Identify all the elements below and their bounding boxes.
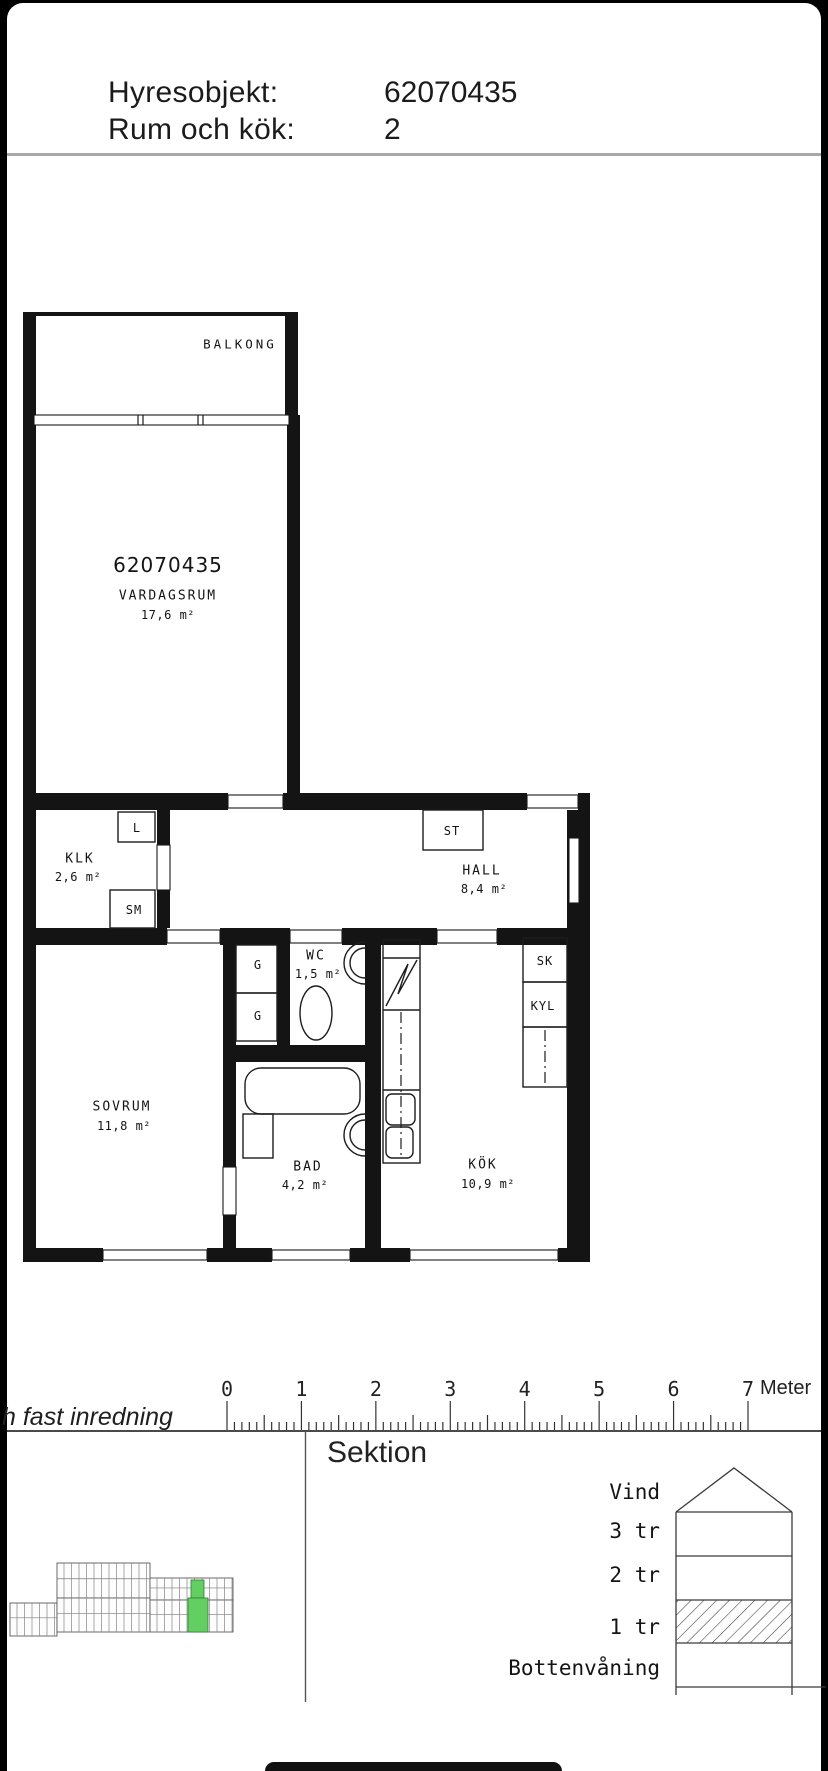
room-area-klk: 2,6 m² (55, 870, 101, 884)
home-indicator[interactable] (265, 1762, 562, 1771)
section-floor-bottenvaning: Bottenvåning (508, 1656, 660, 1680)
room-label-hall: HALL (462, 864, 501, 879)
section-title: Sektion (327, 1436, 427, 1470)
room-label-bad: BAD (293, 1160, 322, 1175)
closet-label-st: ST (444, 824, 460, 838)
caption-fragment: h fast inredning (2, 1403, 173, 1432)
ruler-tick-label: 3 (444, 1377, 456, 1401)
room-label-klk: KLK (65, 852, 94, 867)
bad-washbasin-icon (344, 1114, 365, 1156)
ruler-tick-label: 5 (593, 1377, 605, 1401)
balcony-label: BALKONG (203, 337, 277, 352)
closet-label-g1: G (254, 958, 262, 972)
highlighted-unit-upper (191, 1580, 204, 1598)
scale-bar-ticks (227, 1401, 748, 1431)
stove-icon (386, 960, 417, 1006)
room-label-kok: KÖK (468, 1158, 497, 1173)
closet-label-kyl: KYL (531, 999, 556, 1013)
ruler-tick-label: 0 (221, 1377, 233, 1401)
kitchen-counter (383, 940, 420, 1163)
highlighted-unit (188, 1598, 208, 1632)
room-area-bad: 4,2 m² (282, 1178, 328, 1192)
section-floor-3tr: 3 tr (609, 1519, 660, 1543)
bathtub-icon (245, 1068, 360, 1114)
toilet-icon (300, 986, 332, 1040)
ruler-tick-label: 4 (519, 1377, 531, 1401)
wc-washbasin-icon (344, 942, 365, 984)
closet-label-l: L (133, 821, 141, 835)
ruler-tick-label: 6 (668, 1377, 680, 1401)
header-value-hyresobjekt: 62070435 (384, 76, 517, 110)
apartment-number-label: 62070435 (113, 553, 223, 577)
section-floor-2tr: 2 tr (609, 1563, 660, 1587)
room-label-vardagsrum: VARDAGSRUM (119, 589, 217, 604)
header-label-hyresobjekt: Hyresobjekt: (108, 76, 278, 110)
section-floor-1tr: 1 tr (609, 1615, 660, 1639)
highlighted-floor-hatch (676, 1600, 792, 1643)
room-area-sovrum: 11,8 m² (97, 1119, 151, 1133)
scale-bar-unit: Meter (760, 1377, 811, 1400)
section-floor-vind: Vind (609, 1480, 660, 1504)
room-label-wc: WC (306, 949, 326, 964)
site-plan-map (10, 1563, 233, 1636)
ruler-tick-label: 1 (295, 1377, 307, 1401)
bad-cabinet (243, 1114, 273, 1158)
room-label-sovrum: SOVRUM (93, 1100, 152, 1115)
windows (34, 415, 578, 1260)
closet-label-sk: SK (537, 954, 553, 968)
room-area-wc: 1,5 m² (295, 967, 341, 981)
header-label-rum-och-kok: Rum och kök: (108, 113, 295, 147)
room-area-vardagsrum: 17,6 m² (141, 608, 195, 622)
closet-label-g2: G (254, 1009, 262, 1023)
room-area-kok: 10,9 m² (461, 1177, 515, 1191)
header-value-rum-och-kok: 2 (384, 113, 401, 147)
closet-label-sm: SM (126, 903, 142, 917)
ruler-tick-label: 2 (370, 1377, 382, 1401)
room-area-hall: 8,4 m² (461, 882, 507, 896)
section-elevation (676, 1468, 826, 1695)
document-content: Hyresobjekt: 62070435 Rum och kök: 2 BAL… (0, 0, 828, 1771)
floor-plan-canvas (0, 0, 828, 1771)
ruler-tick-label: 7 (742, 1377, 754, 1401)
phone-screen: Hyresobjekt: 62070435 Rum och kök: 2 BAL… (0, 0, 828, 1771)
